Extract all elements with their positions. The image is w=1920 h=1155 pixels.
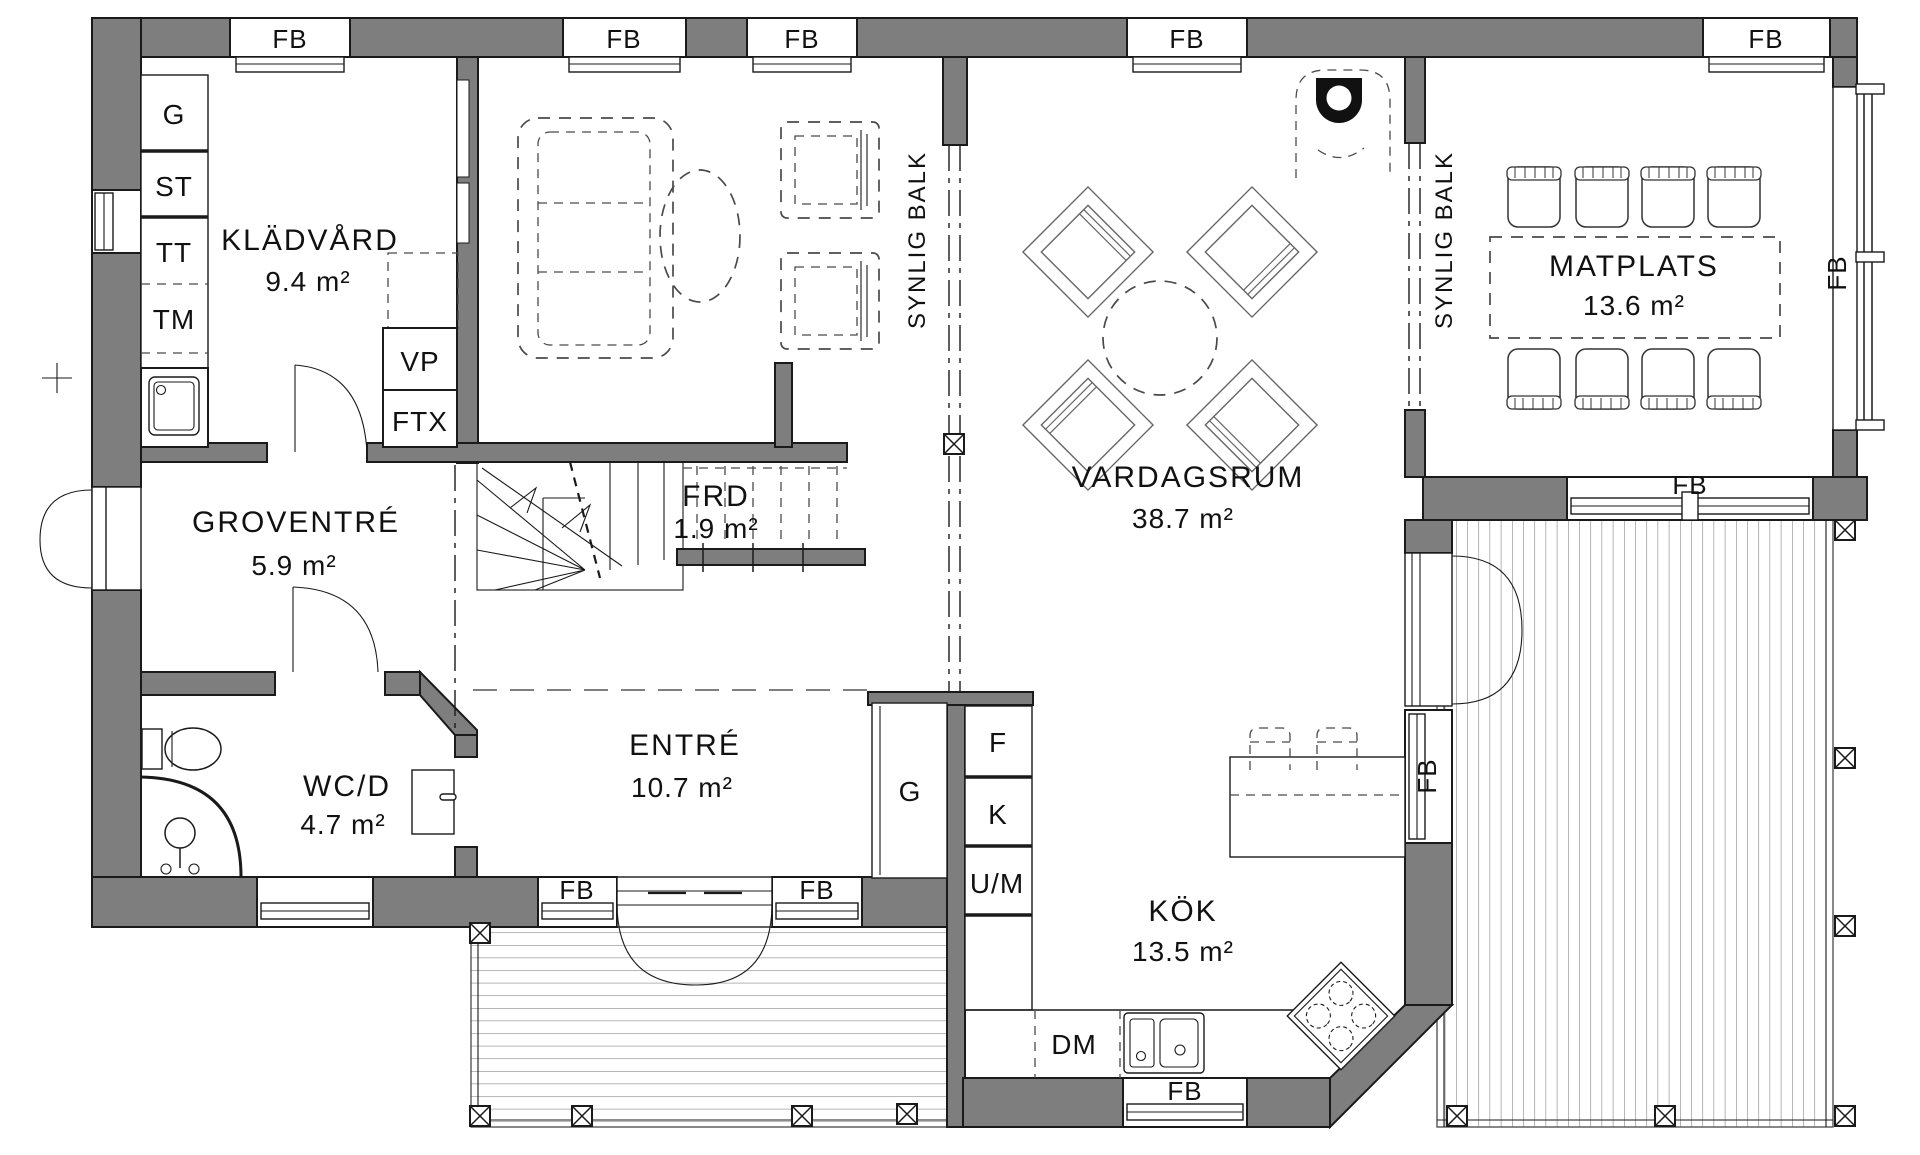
door-wcd-leaf — [412, 770, 456, 834]
window-label: FB — [1167, 1076, 1202, 1106]
beam-label: SYNLIG BALK — [1431, 151, 1458, 329]
window-bottom-2: FB — [772, 875, 862, 927]
room-name-entre: ENTRÉ — [629, 729, 741, 762]
floor-plan-drawing: FB FB FB FB FB — [0, 0, 1920, 1155]
armchair-icon — [781, 122, 879, 218]
shower-icon — [141, 777, 241, 877]
room-area-matplats: 13.6 m² — [1583, 290, 1685, 321]
cleaning-closet-label: ST — [155, 171, 193, 202]
dryer-label: TT — [156, 237, 192, 268]
room-name-matplats: MATPLATS — [1549, 250, 1719, 283]
window-label: FB — [799, 875, 834, 905]
kitchen-fixtures: F K U/M DM — [965, 706, 1405, 1078]
cabinet-label: G — [163, 99, 186, 130]
window-top-5: FB — [1703, 18, 1830, 72]
ventilation-unit-label: FTX — [392, 406, 448, 437]
dining-chair-icon — [1707, 349, 1761, 409]
laundry-sink-icon — [141, 368, 208, 447]
room-area-kladvard: 9.4 m² — [265, 266, 350, 297]
window-label: FB — [1672, 470, 1707, 500]
kitchen-island — [1230, 728, 1405, 857]
window-kitchen-south: FB — [1123, 1076, 1247, 1127]
survey-cross — [42, 363, 72, 393]
window-top-1: FB — [230, 18, 350, 72]
room-area-vardagsrum: 38.7 m² — [1132, 503, 1234, 534]
door-kladvard — [295, 365, 367, 452]
chair-icon — [1187, 187, 1317, 317]
room-name-wcd: WC/D — [303, 770, 391, 803]
freezer-label: F — [989, 727, 1007, 758]
window-bottom-1: FB — [538, 875, 617, 927]
washer-label: TM — [153, 304, 195, 335]
dining-chair-icon — [1507, 349, 1561, 409]
room-area-groventre: 5.9 m² — [251, 550, 336, 581]
dining-chair-icon — [1641, 349, 1695, 409]
wcd-fixtures — [141, 728, 241, 877]
floor-plan-page: FB FB FB FB FB — [0, 0, 1920, 1155]
dining-chair-icon — [1707, 167, 1761, 227]
armchair-icon — [781, 253, 879, 349]
window-wcd — [257, 877, 373, 927]
kitchen-sink-icon — [1124, 1013, 1204, 1073]
sofa-icon — [518, 118, 673, 358]
staircase — [477, 462, 683, 590]
room-name-kladvard: KLÄDVÅRD — [221, 224, 399, 257]
hall-closet-label: G — [899, 776, 922, 807]
laundry-fixtures: G ST TT TM VP FTX — [141, 75, 458, 447]
front-deck — [471, 925, 947, 1127]
beam-post-marker — [944, 434, 964, 454]
door-wcd-inner — [293, 587, 378, 672]
coffee-table-icon — [660, 170, 740, 302]
dining-chair-icon — [1507, 167, 1561, 227]
window-label: FB — [272, 24, 307, 54]
window-kitchen-east: FB — [1405, 710, 1452, 843]
window-label: FB — [1822, 255, 1852, 290]
hall-closet: G — [872, 703, 947, 878]
dining-chair-icon — [1575, 349, 1629, 409]
beam-label: SYNLIG BALK — [904, 151, 931, 329]
room-area-frd: 1.9 m² — [673, 513, 758, 544]
window-top-4: FB — [1127, 18, 1247, 72]
dining-chair-icon — [1575, 167, 1629, 227]
room-area-entre: 10.7 m² — [631, 772, 733, 803]
heat-pump-label: VP — [400, 346, 439, 377]
window-label: FB — [1412, 758, 1442, 793]
window-label: FB — [606, 24, 641, 54]
round-table-icon — [1103, 281, 1217, 395]
beams: SYNLIG BALK SYNLIG BALK — [455, 143, 1458, 730]
entrance-door-groventre — [40, 487, 141, 590]
room-name-kok: KÖK — [1148, 895, 1217, 928]
chair-icon — [1023, 187, 1153, 317]
window-label: FB — [784, 24, 819, 54]
window-left — [92, 190, 141, 253]
window-top-3: FB — [747, 18, 857, 72]
fridge-label: K — [988, 799, 1008, 830]
window-label: FB — [1748, 24, 1783, 54]
room-area-wcd: 4.7 m² — [300, 809, 385, 840]
window-label: FB — [1169, 24, 1204, 54]
window-matplats-south: FB — [1567, 470, 1813, 520]
dining-furniture — [1490, 167, 1780, 409]
window-top-2: FB — [563, 18, 686, 72]
room-name-frd: FRD — [682, 480, 750, 513]
fireplace-icon — [1296, 70, 1390, 178]
toilet-icon — [142, 728, 221, 770]
window-matplats-east: FB — [1822, 84, 1884, 430]
dishwasher-label: DM — [1051, 1029, 1097, 1060]
rear-deck — [1437, 520, 1833, 1127]
oven-micro-label: U/M — [970, 868, 1024, 899]
room-name-groventre: GROVENTRÉ — [192, 506, 400, 539]
room-area-kok: 13.5 m² — [1132, 936, 1234, 967]
room-name-vardagsrum: VARDAGSRUM — [1072, 461, 1305, 494]
dining-chair-icon — [1641, 167, 1695, 227]
window-label: FB — [559, 875, 594, 905]
